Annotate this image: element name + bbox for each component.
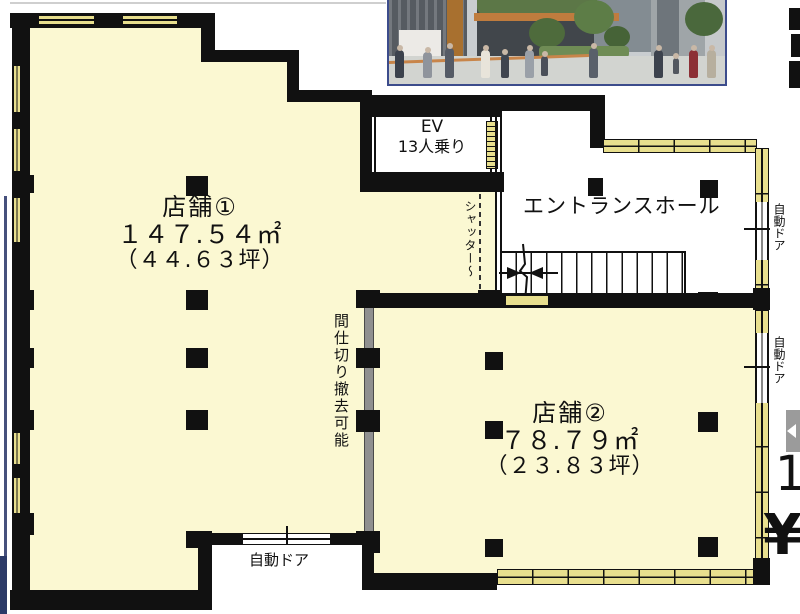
hall-west-wall: [500, 111, 502, 251]
auto-door-label-upper: 自動ドア: [771, 203, 788, 251]
pillar: [356, 348, 380, 368]
store2-area-m2: ７８.７９㎡: [460, 427, 680, 455]
door-tick: [286, 526, 288, 545]
cropped-glyph-bar: [791, 34, 800, 57]
auto-door-label-bottom: 自動ドア: [249, 549, 309, 570]
pillar: [698, 412, 718, 432]
wall: [10, 590, 212, 610]
store1-area-tsubo: （４４.６３坪）: [90, 249, 310, 274]
building-photo: [387, 0, 727, 86]
left-cropped-panel-corner: [0, 556, 7, 614]
window: [122, 15, 178, 25]
pillar: [186, 410, 208, 430]
entrance-hall-label: エントランスホール: [523, 190, 721, 220]
photo-person: [654, 50, 663, 78]
wall: [330, 533, 358, 545]
wall: [212, 533, 243, 545]
photo-person: [525, 50, 534, 78]
pillar: [12, 175, 34, 193]
window: [13, 197, 21, 243]
pillar: [485, 539, 503, 557]
store1-area-m2: １４７.５４㎡: [90, 221, 310, 249]
window: [38, 15, 95, 25]
store1-name: 店舗①: [90, 194, 310, 221]
photo-garage-door: [399, 30, 441, 58]
photo-person: [589, 48, 598, 78]
door-strip: [505, 295, 549, 306]
cropped-yen: ¥: [763, 508, 800, 564]
floor-plan-canvas: EV 13人乗り エントランスホール シャッター〜 自動ドア 自動ドア 自動ドア…: [0, 0, 800, 614]
wall: [360, 172, 504, 192]
store1-floor: [203, 60, 289, 533]
elevator-label: EV 13人乗り: [376, 117, 488, 157]
window: [13, 65, 21, 113]
photo-person: [689, 50, 698, 78]
photo-person: [541, 56, 548, 76]
window: [13, 432, 21, 465]
pillar: [698, 292, 718, 307]
cropped-number: 1: [775, 450, 800, 498]
elevator-name: EV: [376, 117, 488, 137]
partition-label: 間仕切り撤去可能: [331, 313, 352, 449]
pillar: [12, 348, 34, 368]
photo-person: [445, 48, 454, 78]
store1-floor: [28, 26, 203, 590]
gray-arrow-chevron: [787, 424, 796, 438]
elevator-capacity: 13人乗り: [376, 137, 488, 156]
wall: [198, 547, 212, 595]
window: [13, 477, 21, 515]
pillar: [186, 531, 212, 548]
pillar: [356, 290, 380, 308]
window-band-south: [497, 569, 757, 585]
pillar: [186, 290, 208, 310]
photo-person: [501, 54, 509, 78]
pillar: [12, 410, 34, 430]
pillar: [12, 513, 34, 535]
cropped-glyph-bar: [789, 8, 800, 30]
store2-area-tsubo: （２３.８３坪）: [460, 455, 680, 480]
shutter-label: シャッター〜: [462, 200, 479, 278]
photo-tree: [604, 26, 630, 48]
pillar: [698, 537, 718, 557]
pillar: [186, 348, 208, 368]
photo-tree: [685, 2, 723, 36]
wall: [360, 573, 497, 590]
store2-name: 店舗②: [460, 400, 680, 427]
auto-door: [756, 202, 768, 260]
store2-label: 店舗② ７８.７９㎡ （２３.８３坪）: [460, 400, 680, 480]
door-tick: [744, 228, 770, 230]
left-cropped-panel-edge: [4, 196, 7, 558]
window-band-north: [603, 139, 757, 153]
store1-label: 店舗① １４７.５４㎡ （４４.６３坪）: [90, 194, 310, 274]
auto-door: [756, 333, 768, 403]
pillar: [12, 290, 34, 310]
store1-floor: [289, 98, 368, 533]
window: [13, 128, 21, 172]
photo-person: [673, 58, 679, 74]
photo-person: [481, 50, 490, 78]
divider: [10, 2, 386, 4]
wall: [201, 50, 299, 62]
photo-person: [423, 52, 432, 78]
photo-person: [707, 50, 716, 78]
door-tick: [744, 366, 770, 368]
auto-door-label-lower: 自動ドア: [771, 336, 788, 384]
cropped-glyph-bar: [789, 61, 800, 88]
photo-person: [395, 50, 404, 78]
wall: [753, 288, 770, 310]
pillar: [356, 410, 380, 432]
photo-tree: [529, 18, 565, 48]
pillar: [485, 352, 503, 370]
shutter-line: [479, 194, 481, 293]
